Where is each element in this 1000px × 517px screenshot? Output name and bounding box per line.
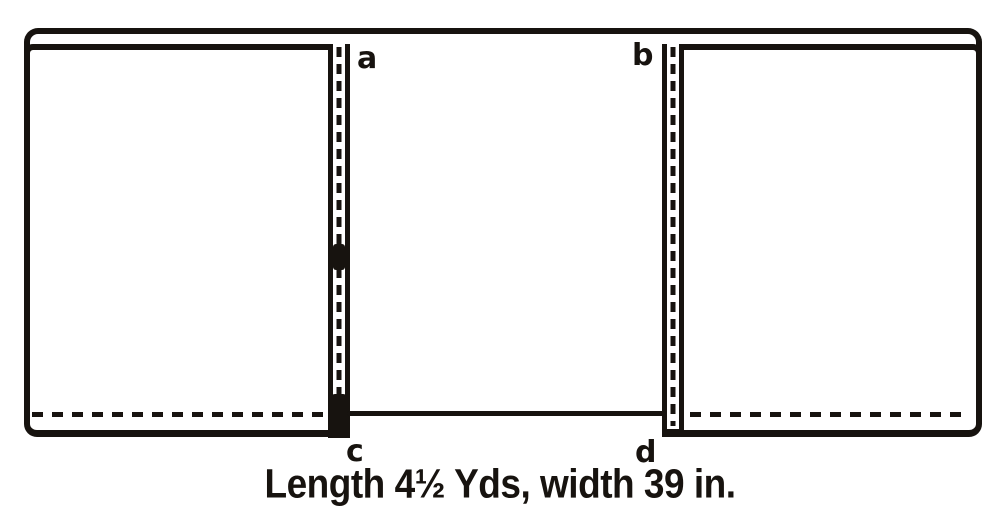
stitch-dashed-line-bd <box>671 47 676 426</box>
hem-dashed-line-right <box>690 412 968 417</box>
point-label-b: b <box>632 41 653 71</box>
ink-blob-mid <box>333 244 345 270</box>
ink-blob-bottom <box>331 394 347 438</box>
seam-strip-ac <box>328 44 350 438</box>
hem-dashed-line-left <box>32 412 328 417</box>
seam-strip-bd <box>662 44 684 437</box>
point-label-a: a <box>357 44 377 74</box>
figure-caption: Length 4½ Yds, width 39 in. <box>0 461 1000 507</box>
fabric-cutting-diagram: a b c d Length 4½ Yds, width 39 in. <box>0 0 1000 517</box>
cut-line-cd <box>347 411 665 416</box>
right-fold-panel <box>684 44 982 437</box>
stitch-dashed-line-ac <box>337 47 342 435</box>
left-fold-panel <box>24 44 332 437</box>
